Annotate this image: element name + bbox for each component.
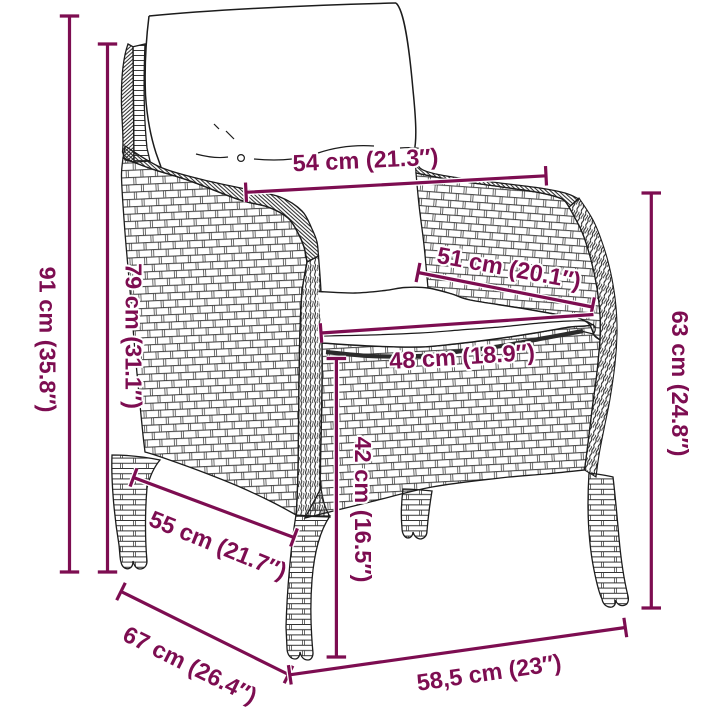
- svg-text:79 cm (31.1″): 79 cm (31.1″): [120, 263, 146, 409]
- svg-text:63 cm (24.8″): 63 cm (24.8″): [667, 311, 693, 457]
- svg-text:42 cm (16.5″): 42 cm (16.5″): [350, 437, 376, 583]
- svg-text:91 cm (35.8″): 91 cm (35.8″): [35, 267, 61, 413]
